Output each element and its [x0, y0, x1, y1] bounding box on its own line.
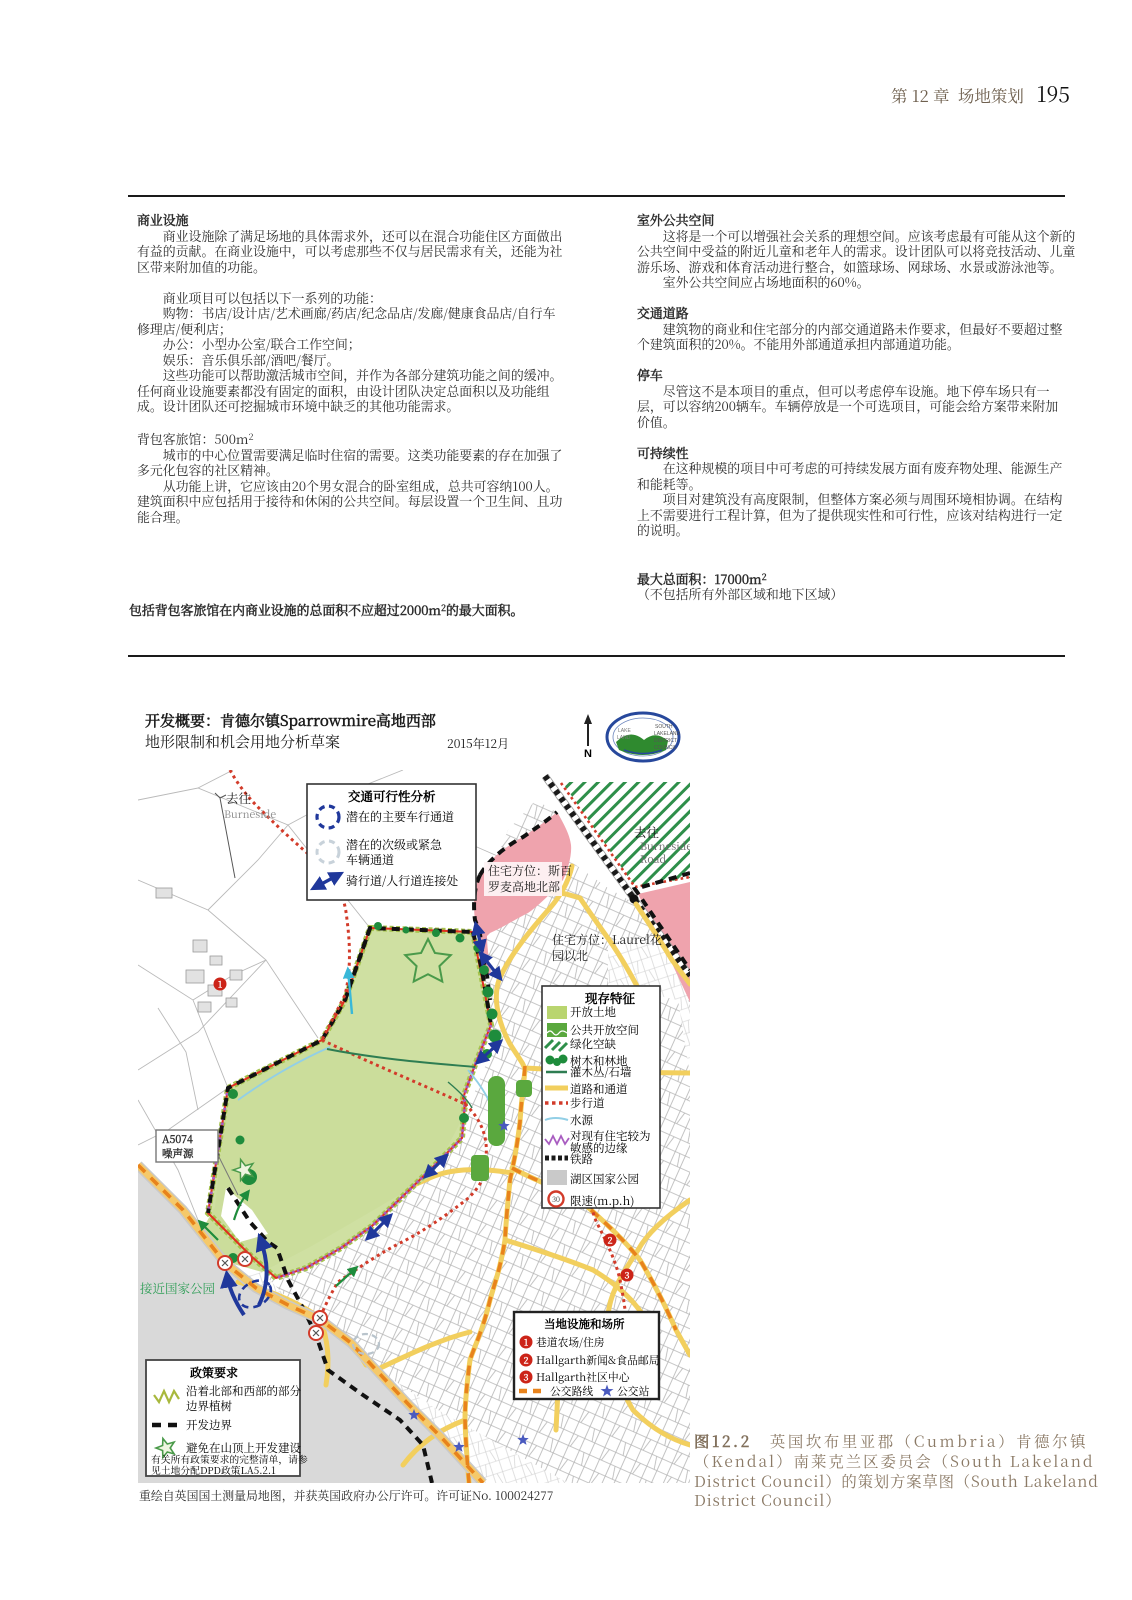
svg-text:N: N [584, 748, 592, 758]
svg-text:LAKELAND: LAKELAND [654, 731, 681, 737]
svg-text:铁路: 铁路 [570, 1151, 593, 1167]
svg-text:政策要求: 政策要求 [190, 1364, 238, 1381]
svg-text:边界植树: 边界植树 [186, 1398, 232, 1414]
svg-text:水源: 水源 [570, 1112, 593, 1128]
svg-text:Road: Road [640, 852, 667, 867]
svg-text:灌木丛/石墙: 灌木丛/石墙 [570, 1064, 632, 1080]
svg-text:2: 2 [607, 1234, 612, 1247]
svg-text:限速(m.p.h): 限速(m.p.h) [570, 1193, 634, 1209]
svg-text:车辆通道: 车辆通道 [346, 851, 394, 868]
svg-text:Hallgarth新闻&食品邮局: Hallgarth新闻&食品邮局 [536, 1353, 660, 1368]
svg-text:LAKE: LAKE [618, 728, 631, 734]
svg-text:巷道农场/住房: 巷道农场/住房 [536, 1335, 605, 1350]
svg-text:3: 3 [523, 1371, 528, 1384]
svg-text:骑行道/人行道连接处: 骑行道/人行道连接处 [346, 872, 458, 889]
svg-text:Burneside: Burneside [224, 807, 276, 822]
svg-text:潜在的主要车行通道: 潜在的主要车行通道 [346, 808, 454, 825]
svg-text:噪声源: 噪声源 [162, 1146, 194, 1161]
svg-text:沿着北部和西部的部分: 沿着北部和西部的部分 [186, 1383, 301, 1399]
svg-text:Hallgarth社区中心: Hallgarth社区中心 [536, 1370, 631, 1385]
svg-text:30: 30 [552, 1195, 560, 1205]
svg-text:当地设施和场所: 当地设施和场所 [544, 1316, 625, 1332]
svg-text:步行道: 步行道 [570, 1095, 605, 1111]
svg-text:3: 3 [624, 1269, 629, 1282]
svg-text:公交站: 公交站 [617, 1384, 650, 1399]
svg-text:LAND: LAND [617, 735, 631, 741]
svg-text:园以北: 园以北 [552, 947, 588, 964]
svg-text:公交路线: 公交路线 [550, 1384, 593, 1399]
svg-text:开发边界: 开发边界 [186, 1417, 232, 1433]
svg-text:去往: 去往 [226, 789, 252, 807]
svg-text:绿化空缺: 绿化空缺 [570, 1036, 616, 1052]
svg-text:住宅方位：Laurel花: 住宅方位：Laurel花 [552, 931, 662, 948]
svg-text:开放土地: 开放土地 [570, 1004, 616, 1020]
svg-text:罗麦高地北部: 罗麦高地北部 [488, 878, 560, 895]
svg-text:接近国家公园: 接近国家公园 [140, 1279, 215, 1297]
svg-text:见土地分配DPD政策LA5.2.1: 见土地分配DPD政策LA5.2.1 [151, 1463, 276, 1477]
svg-text:2: 2 [523, 1354, 528, 1367]
svg-text:SOUTH: SOUTH [655, 724, 673, 730]
svg-text:湖区国家公园: 湖区国家公园 [570, 1171, 639, 1187]
svg-text:DISTRICT: DISTRICT [654, 738, 677, 744]
svg-text:交通可行性分析: 交通可行性分析 [348, 787, 436, 805]
svg-text:COUNCIL: COUNCIL [654, 745, 677, 751]
svg-text:住宅方位：斯百: 住宅方位：斯百 [488, 862, 572, 879]
svg-text:A5074: A5074 [161, 1132, 193, 1147]
